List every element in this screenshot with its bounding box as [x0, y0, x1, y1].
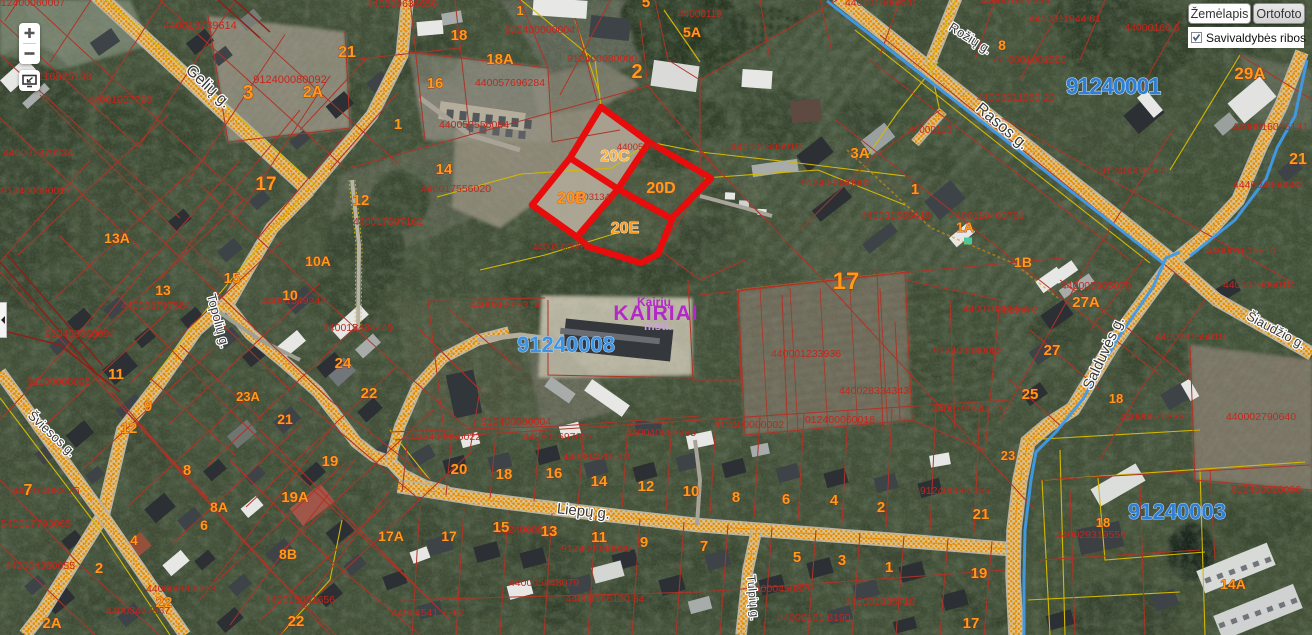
svg-text:12: 12 — [353, 192, 370, 209]
svg-text:15: 15 — [224, 270, 241, 287]
svg-text:13A: 13A — [104, 230, 130, 246]
svg-text:440014083 75: 440014083 75 — [12, 485, 79, 497]
svg-text:6: 6 — [200, 517, 208, 533]
svg-text:4400011944 01: 4400011944 01 — [1029, 13, 1101, 25]
svg-text:1A: 1A — [956, 219, 974, 235]
svg-text:444604066582: 444604066582 — [1233, 179, 1303, 191]
svg-text:8: 8 — [998, 37, 1006, 53]
svg-text:912400060007: 912400060007 — [0, 0, 65, 9]
svg-text:18: 18 — [1096, 515, 1110, 530]
svg-text:440001606018: 440001606018 — [1223, 279, 1293, 291]
svg-text:2: 2 — [95, 560, 103, 577]
svg-text:440028334343: 440028334343 — [839, 385, 909, 397]
svg-text:440809636656: 440809636656 — [367, 0, 437, 10]
svg-text:4: 4 — [830, 492, 839, 509]
svg-text:19A: 19A — [281, 489, 309, 506]
svg-text:15: 15 — [493, 519, 510, 536]
svg-text:91100008895: 91100008895 — [27, 376, 91, 388]
svg-text:440031565619: 440031565619 — [861, 210, 931, 222]
svg-text:7: 7 — [700, 538, 708, 555]
svg-text:440001606320: 440001606320 — [845, 0, 915, 9]
svg-text:912400080002: 912400080002 — [801, 177, 871, 189]
svg-text:1B: 1B — [1014, 254, 1032, 270]
svg-text:3A: 3A — [850, 145, 869, 162]
svg-text:22: 22 — [288, 613, 305, 630]
svg-text:44004541 7762: 44004541 7762 — [392, 607, 465, 619]
svg-text:440005905070: 440005905070 — [1061, 280, 1131, 292]
svg-text:8: 8 — [732, 489, 740, 506]
svg-text:20E: 20E — [611, 220, 640, 237]
svg-text:440001606259: 440001606259 — [980, 0, 1050, 7]
svg-text:912400080065: 912400080065 — [920, 485, 990, 497]
svg-text:91240008: 91240008 — [517, 332, 615, 357]
svg-text:4400016016131: 4400016016131 — [1232, 121, 1308, 133]
svg-text:440001605919: 440001605919 — [731, 141, 801, 153]
svg-text:440804515 18: 440804515 18 — [562, 451, 629, 463]
svg-text:6: 6 — [782, 491, 790, 508]
svg-text:912400060017: 912400060017 — [1, 185, 71, 197]
svg-text:16: 16 — [427, 75, 444, 92]
svg-text:012400060018: 012400060018 — [805, 414, 875, 426]
svg-text:22: 22 — [361, 385, 378, 402]
svg-text:8A: 8A — [210, 499, 228, 515]
svg-text:1: 1 — [885, 559, 893, 576]
svg-text:23: 23 — [1001, 448, 1015, 463]
svg-text:44000119: 44000119 — [678, 9, 722, 20]
svg-text:17: 17 — [255, 174, 276, 195]
svg-text:20D: 20D — [646, 180, 675, 197]
svg-text:44000160 6: 44000160 6 — [1124, 22, 1180, 34]
svg-text:10: 10 — [683, 483, 700, 500]
svg-text:20B: 20B — [557, 190, 586, 207]
svg-text:2A: 2A — [42, 615, 61, 632]
svg-text:18A: 18A — [486, 51, 514, 68]
svg-text:44004166120 34: 44004166120 34 — [566, 593, 645, 605]
svg-text:27A: 27A — [1072, 294, 1100, 311]
svg-text:21: 21 — [277, 411, 293, 427]
svg-text:9: 9 — [144, 398, 152, 415]
svg-text:13: 13 — [541, 523, 558, 540]
svg-text:29A: 29A — [1234, 64, 1265, 83]
svg-text:10: 10 — [282, 287, 298, 303]
svg-text:440001233936: 440001233936 — [771, 348, 841, 360]
svg-text:8: 8 — [183, 462, 191, 479]
svg-text:1: 1 — [394, 116, 402, 133]
svg-text:27: 27 — [1044, 342, 1061, 359]
svg-text:440005702361: 440005702361 — [1120, 411, 1190, 423]
svg-text:14: 14 — [591, 473, 608, 490]
svg-text:19: 19 — [971, 565, 988, 582]
svg-text:440001379234: 440001379234 — [3, 147, 73, 159]
svg-text:24: 24 — [335, 355, 352, 372]
svg-text:17: 17 — [963, 615, 980, 632]
svg-text:44000011963 23: 44000011963 23 — [977, 92, 1055, 104]
svg-text:19: 19 — [322, 453, 339, 470]
svg-text:20C: 20C — [600, 148, 630, 165]
svg-text:4400108899 17: 4400108899 17 — [963, 303, 1036, 315]
svg-text:44003 00007: 44003 00007 — [532, 242, 587, 253]
svg-text:1: 1 — [911, 181, 919, 198]
svg-text:mstl.: mstl. — [644, 319, 672, 333]
svg-text:21: 21 — [338, 44, 356, 61]
svg-text:912400080082: 912400080082 — [933, 345, 1003, 357]
svg-text:440040663985: 440040663985 — [626, 427, 696, 439]
svg-text:912400010801: 912400010801 — [1100, 165, 1170, 177]
svg-text:440015051656: 440015051656 — [265, 594, 335, 606]
svg-text:3: 3 — [242, 82, 253, 104]
svg-text:13: 13 — [155, 282, 171, 298]
svg-text:440052556084: 440052556084 — [439, 119, 509, 131]
svg-text:013400955022: 013400955022 — [411, 431, 481, 443]
svg-text:440001615510: 440001615510 — [1206, 245, 1276, 257]
svg-text:440004350055: 440004350055 — [5, 560, 75, 572]
svg-text:9116525198: 9116525198 — [32, 71, 92, 83]
svg-text:910400060094: 910400060094 — [45, 328, 115, 340]
svg-text:12: 12 — [121, 420, 138, 437]
svg-text:5: 5 — [793, 549, 801, 566]
svg-text:18: 18 — [451, 27, 468, 44]
svg-text:440005848079: 440005848079 — [509, 577, 579, 589]
svg-text:12: 12 — [638, 478, 655, 495]
svg-text:18: 18 — [496, 466, 513, 483]
svg-text:440023155010: 440023155010 — [1155, 331, 1225, 343]
svg-text:440036255314: 440036255314 — [470, 299, 540, 311]
svg-text:91240003: 91240003 — [1128, 499, 1226, 524]
svg-text:5A: 5A — [683, 24, 701, 40]
svg-text:9: 9 — [640, 534, 648, 551]
svg-text:912400000002: 912400000002 — [714, 419, 784, 431]
svg-text:23A: 23A — [236, 389, 260, 404]
svg-text:11: 11 — [591, 529, 607, 546]
svg-text:440013739614: 440013739614 — [163, 20, 236, 32]
svg-text:540017793065: 540017793065 — [1, 518, 71, 530]
svg-text:440017697162: 440017697162 — [353, 216, 423, 228]
svg-text:440079054712: 440079054712 — [932, 403, 1002, 415]
svg-text:17: 17 — [441, 528, 457, 544]
svg-text:3: 3 — [838, 552, 846, 569]
svg-text:17A: 17A — [378, 528, 404, 544]
svg-text:912400080000: 912400080000 — [567, 53, 637, 65]
svg-text:17: 17 — [833, 268, 860, 295]
svg-text:20: 20 — [451, 461, 468, 478]
svg-text:44000161 8190: 44000161 8190 — [778, 612, 851, 624]
svg-text:7: 7 — [24, 482, 33, 499]
svg-text:440057696284: 440057696284 — [475, 77, 545, 89]
svg-text:91240001: 91240001 — [1066, 73, 1162, 99]
svg-text:18: 18 — [1109, 391, 1123, 406]
svg-text:8B: 8B — [279, 546, 297, 562]
svg-text:440801697627: 440801697627 — [523, 431, 593, 443]
svg-text:440002790640: 440002790640 — [1226, 411, 1296, 423]
svg-text:14: 14 — [436, 161, 453, 178]
svg-text:440001835718: 440001835718 — [845, 596, 915, 608]
svg-text:2: 2 — [877, 499, 885, 516]
svg-text:440017556020: 440017556020 — [421, 183, 491, 195]
svg-text:5: 5 — [642, 0, 650, 11]
svg-text:1: 1 — [516, 3, 523, 18]
svg-text:912400080004: 912400080004 — [481, 416, 551, 428]
svg-text:912400000004: 912400000004 — [505, 24, 575, 36]
svg-text:21: 21 — [1289, 151, 1307, 168]
svg-text:16: 16 — [546, 465, 563, 482]
svg-text:440015484449: 440015484449 — [323, 322, 393, 334]
svg-text:44 0001001580: 44 0001001580 — [994, 54, 1067, 66]
svg-text:4: 4 — [130, 532, 138, 548]
svg-text:44001037798: 44001037798 — [88, 94, 152, 106]
svg-text:44000110: 44000110 — [908, 125, 952, 136]
svg-text:21: 21 — [973, 506, 990, 523]
svg-text:11: 11 — [108, 366, 124, 383]
svg-text:2A: 2A — [303, 84, 324, 101]
svg-text:612400010096: 612400010096 — [1231, 484, 1301, 496]
svg-text:10A: 10A — [305, 253, 331, 269]
svg-text:2: 2 — [631, 61, 642, 83]
svg-text:440029319556: 440029319556 — [1056, 529, 1126, 541]
svg-text:22: 22 — [156, 594, 173, 611]
svg-text:440009797564: 440009797564 — [121, 300, 191, 312]
svg-text:14A: 14A — [1220, 576, 1246, 592]
svg-text:25: 25 — [1022, 386, 1039, 403]
